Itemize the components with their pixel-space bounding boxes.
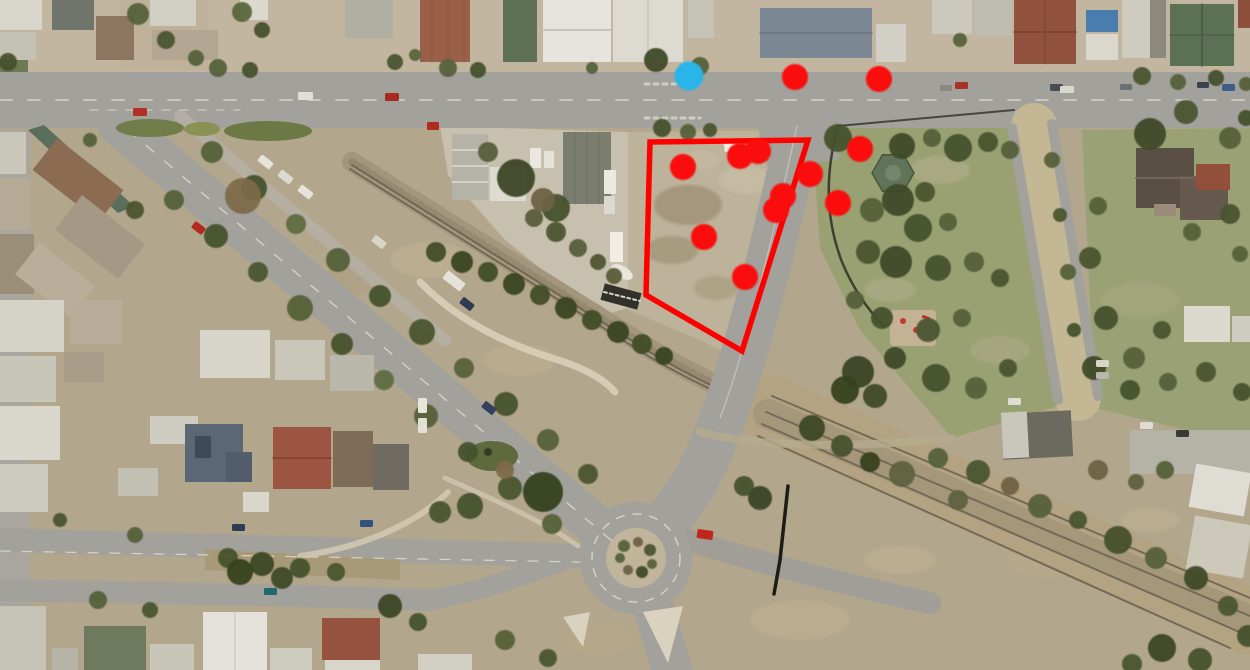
buildings <box>52 648 78 670</box>
tree <box>429 501 451 523</box>
tree <box>856 240 880 264</box>
buildings <box>195 436 211 458</box>
tree <box>1069 511 1087 529</box>
tree <box>498 476 522 500</box>
tree <box>478 142 498 162</box>
tree <box>546 222 566 242</box>
tree <box>916 318 940 342</box>
tree <box>633 537 643 547</box>
tree <box>523 472 563 512</box>
tree <box>1088 460 1108 480</box>
ground-patches <box>694 276 738 300</box>
tree <box>127 3 149 25</box>
tree <box>618 540 630 552</box>
buildings <box>604 196 615 214</box>
tree <box>89 591 107 609</box>
tree <box>539 649 557 667</box>
ground-patches <box>646 236 698 264</box>
tree <box>83 133 97 147</box>
marker-red-10[interactable] <box>763 197 789 223</box>
buildings <box>1001 411 1029 458</box>
tree <box>860 452 880 472</box>
tree <box>966 460 990 484</box>
tree <box>636 566 648 578</box>
ground-patches <box>1120 508 1180 532</box>
ground-patches <box>864 546 936 574</box>
tree <box>409 613 427 631</box>
buildings <box>150 0 196 26</box>
tree <box>884 347 906 369</box>
tree <box>1028 494 1052 518</box>
buildings <box>1238 0 1250 28</box>
buildings <box>330 355 374 391</box>
tree <box>126 201 144 219</box>
tree <box>944 134 972 162</box>
buildings <box>116 119 184 137</box>
buildings <box>544 151 554 168</box>
tree <box>1053 208 1067 222</box>
vehicle <box>1222 84 1235 91</box>
tree <box>582 310 602 330</box>
tree <box>387 54 403 70</box>
buildings <box>64 352 104 382</box>
tree <box>632 334 652 354</box>
tree <box>494 392 518 416</box>
buildings <box>974 0 1012 36</box>
tree <box>953 309 971 327</box>
vehicle <box>264 588 277 595</box>
tree <box>227 559 253 585</box>
tree <box>164 190 184 210</box>
buildings <box>932 0 972 34</box>
marker-red-5[interactable] <box>727 143 753 169</box>
tree <box>991 269 1009 287</box>
tree <box>495 630 515 650</box>
tree <box>232 2 252 22</box>
tree <box>1220 204 1240 224</box>
tree <box>846 291 864 309</box>
tree <box>457 493 483 519</box>
tree <box>287 295 313 321</box>
vehicle <box>1120 84 1132 90</box>
tree <box>882 184 914 216</box>
buildings <box>270 648 312 670</box>
marker-red-12[interactable] <box>732 264 758 290</box>
buildings <box>876 24 906 62</box>
buildings <box>503 0 537 62</box>
tree <box>242 62 258 78</box>
tree <box>1089 197 1107 215</box>
tree <box>831 376 859 404</box>
tree <box>680 124 696 140</box>
buildings <box>200 330 270 378</box>
tree <box>286 214 306 234</box>
marker-red-2[interactable] <box>866 66 892 92</box>
tree <box>1148 634 1176 662</box>
tree <box>326 248 350 272</box>
tree <box>378 594 402 618</box>
vehicle <box>418 418 427 433</box>
tree <box>965 377 987 399</box>
tree <box>201 141 223 163</box>
buildings <box>243 492 269 512</box>
tree <box>555 297 577 319</box>
buildings <box>1184 306 1230 342</box>
buildings <box>0 464 48 512</box>
tree <box>369 285 391 307</box>
buildings <box>900 318 906 324</box>
tree <box>1183 223 1201 241</box>
buildings <box>1086 10 1118 32</box>
tree <box>653 119 671 137</box>
marker-red-1[interactable] <box>782 64 808 90</box>
tree <box>454 358 474 378</box>
tree <box>644 48 668 72</box>
ground-patches <box>970 336 1030 364</box>
buildings <box>1154 204 1176 216</box>
vehicle <box>1140 422 1153 429</box>
tree <box>497 159 535 197</box>
buildings <box>1150 0 1166 58</box>
buildings <box>96 16 134 60</box>
vehicle <box>1096 372 1109 379</box>
tree <box>542 514 562 534</box>
buildings <box>0 606 46 670</box>
buildings <box>1196 164 1230 190</box>
ground-patches <box>864 278 916 302</box>
tree <box>1134 118 1166 150</box>
buildings <box>0 300 64 352</box>
tree <box>590 254 606 270</box>
aerial-basemap[interactable] <box>0 0 1250 670</box>
buildings <box>420 0 470 62</box>
tree <box>948 490 968 510</box>
tree <box>647 559 657 569</box>
buildings <box>184 122 220 136</box>
roads <box>0 590 430 600</box>
tree <box>860 198 884 222</box>
tree <box>1196 362 1216 382</box>
vehicle <box>1197 82 1209 88</box>
vehicle <box>385 93 399 101</box>
tree <box>478 262 498 282</box>
buildings <box>325 660 380 670</box>
tree <box>426 242 446 262</box>
tree <box>939 213 957 231</box>
tree <box>1044 152 1060 168</box>
tree <box>1159 373 1177 391</box>
buildings <box>70 300 122 344</box>
tree <box>999 359 1017 377</box>
tree <box>569 239 587 257</box>
marker-red-7[interactable] <box>797 161 823 187</box>
tree <box>250 552 274 576</box>
buildings <box>275 340 325 380</box>
scene-layers <box>0 0 1250 670</box>
tree <box>157 31 175 49</box>
tree <box>578 464 598 484</box>
tree <box>904 214 932 242</box>
buildings <box>610 232 623 262</box>
tree <box>204 224 228 248</box>
tree <box>537 429 559 451</box>
tree <box>1133 67 1151 85</box>
buildings <box>226 452 252 482</box>
vehicle <box>955 82 968 89</box>
buildings <box>530 148 541 168</box>
marker-red-6[interactable] <box>670 154 696 180</box>
tree <box>188 50 204 66</box>
tree <box>290 558 310 578</box>
tree <box>799 415 825 441</box>
tree <box>1184 566 1208 590</box>
tree <box>863 384 887 408</box>
tree <box>327 563 345 581</box>
tree <box>1128 474 1144 490</box>
ground-patches <box>750 600 850 640</box>
tree <box>458 442 478 462</box>
tree <box>484 448 492 456</box>
buildings <box>0 132 26 174</box>
buildings <box>1232 316 1250 342</box>
tree <box>1094 306 1118 330</box>
tree <box>1156 461 1174 479</box>
tree <box>607 321 629 343</box>
tree <box>1170 74 1186 90</box>
buildings <box>150 644 194 670</box>
buildings <box>0 178 30 230</box>
tree <box>978 132 998 152</box>
tree <box>831 435 853 457</box>
tree <box>928 448 948 468</box>
roads <box>0 540 585 556</box>
tree <box>271 567 293 589</box>
aerial-map-viewport[interactable] <box>0 0 1250 670</box>
tree <box>1208 70 1224 86</box>
tree <box>953 33 967 47</box>
tree <box>525 209 543 227</box>
marker-red-9[interactable] <box>825 190 851 216</box>
vehicle <box>1060 86 1074 93</box>
buildings <box>0 356 56 402</box>
tree <box>209 59 227 77</box>
ground-zones <box>1130 430 1250 474</box>
tree <box>964 252 984 272</box>
vehicle <box>940 85 952 91</box>
tree <box>531 188 555 212</box>
tree <box>503 273 525 295</box>
tree <box>925 255 951 281</box>
vehicle <box>427 122 439 130</box>
tree <box>530 285 550 305</box>
tree <box>1123 347 1145 369</box>
buildings <box>345 0 393 38</box>
tree <box>1001 141 1019 159</box>
marker-red-3[interactable] <box>847 136 873 162</box>
vehicle <box>418 398 427 413</box>
buildings <box>0 0 42 30</box>
vehicle <box>232 524 245 531</box>
tree <box>615 553 625 563</box>
marker-red-11[interactable] <box>691 224 717 250</box>
buildings <box>885 165 901 181</box>
tree <box>923 129 941 147</box>
tree <box>409 49 421 61</box>
tree <box>734 476 754 496</box>
vehicle <box>1096 360 1109 367</box>
tree <box>470 62 486 78</box>
tree <box>1174 100 1198 124</box>
tree <box>586 62 598 74</box>
buildings <box>333 431 373 487</box>
tree <box>871 307 893 329</box>
buildings <box>688 0 714 38</box>
buildings <box>322 618 380 660</box>
tree <box>127 527 143 543</box>
tree <box>451 251 473 273</box>
buildings <box>0 406 60 460</box>
tree <box>225 178 261 214</box>
tree <box>248 262 268 282</box>
tree <box>1145 547 1167 569</box>
tree <box>915 182 935 202</box>
tree <box>53 513 67 527</box>
buildings <box>1086 34 1118 60</box>
tree <box>644 544 656 556</box>
tree <box>254 22 270 38</box>
tree <box>1232 246 1248 262</box>
marker-blue[interactable] <box>675 62 704 91</box>
tree <box>439 59 457 77</box>
tree <box>606 268 622 284</box>
buildings <box>224 121 312 141</box>
tree <box>1079 247 1101 269</box>
tree <box>1219 127 1241 149</box>
tree <box>1067 323 1081 337</box>
tree <box>1153 321 1171 339</box>
tree <box>889 461 915 487</box>
tree <box>374 370 394 390</box>
ground-patches <box>654 185 722 225</box>
vehicle <box>133 108 147 116</box>
tree <box>1120 380 1140 400</box>
tree <box>1104 526 1132 554</box>
buildings <box>118 468 158 496</box>
tree <box>880 246 912 278</box>
tree <box>1218 596 1238 616</box>
buildings <box>84 626 146 670</box>
tree <box>331 333 353 355</box>
vehicle <box>360 520 373 527</box>
tree <box>496 461 514 479</box>
tree <box>623 565 633 575</box>
tree <box>409 319 435 345</box>
tree <box>889 133 915 159</box>
tree <box>655 347 673 365</box>
vehicle <box>1008 398 1021 405</box>
buildings <box>52 0 94 30</box>
vehicle <box>298 92 313 100</box>
buildings <box>604 170 616 194</box>
buildings <box>418 654 472 670</box>
tree <box>922 364 950 392</box>
vehicle <box>1176 430 1189 437</box>
tree <box>1060 264 1076 280</box>
tree <box>142 602 158 618</box>
tree <box>703 123 717 137</box>
buildings <box>373 444 409 490</box>
tree <box>1001 477 1019 495</box>
